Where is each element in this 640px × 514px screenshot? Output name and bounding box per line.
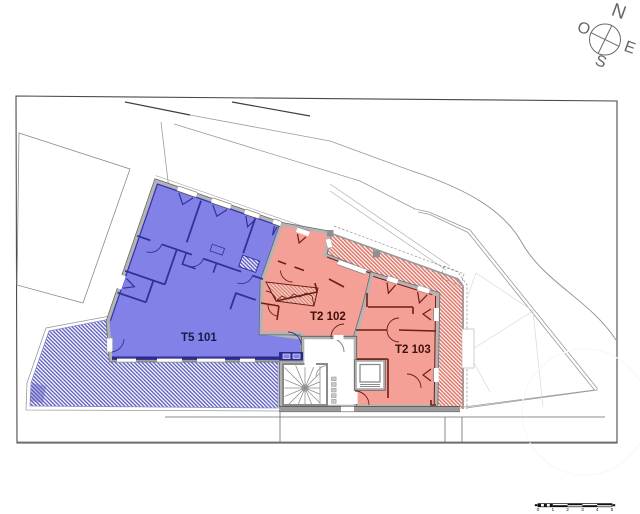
svg-text:3: 3 [581,507,584,513]
svg-text:5: 5 [611,507,614,513]
svg-text:T2 102: T2 102 [310,311,346,323]
svg-text:0: 0 [537,507,540,513]
svg-text:2: 2 [566,507,569,513]
svg-text:T2 103: T2 103 [395,344,431,356]
svg-text:1: 1 [551,507,554,513]
svg-text:4: 4 [596,507,599,513]
svg-text:T5 101: T5 101 [181,332,217,344]
